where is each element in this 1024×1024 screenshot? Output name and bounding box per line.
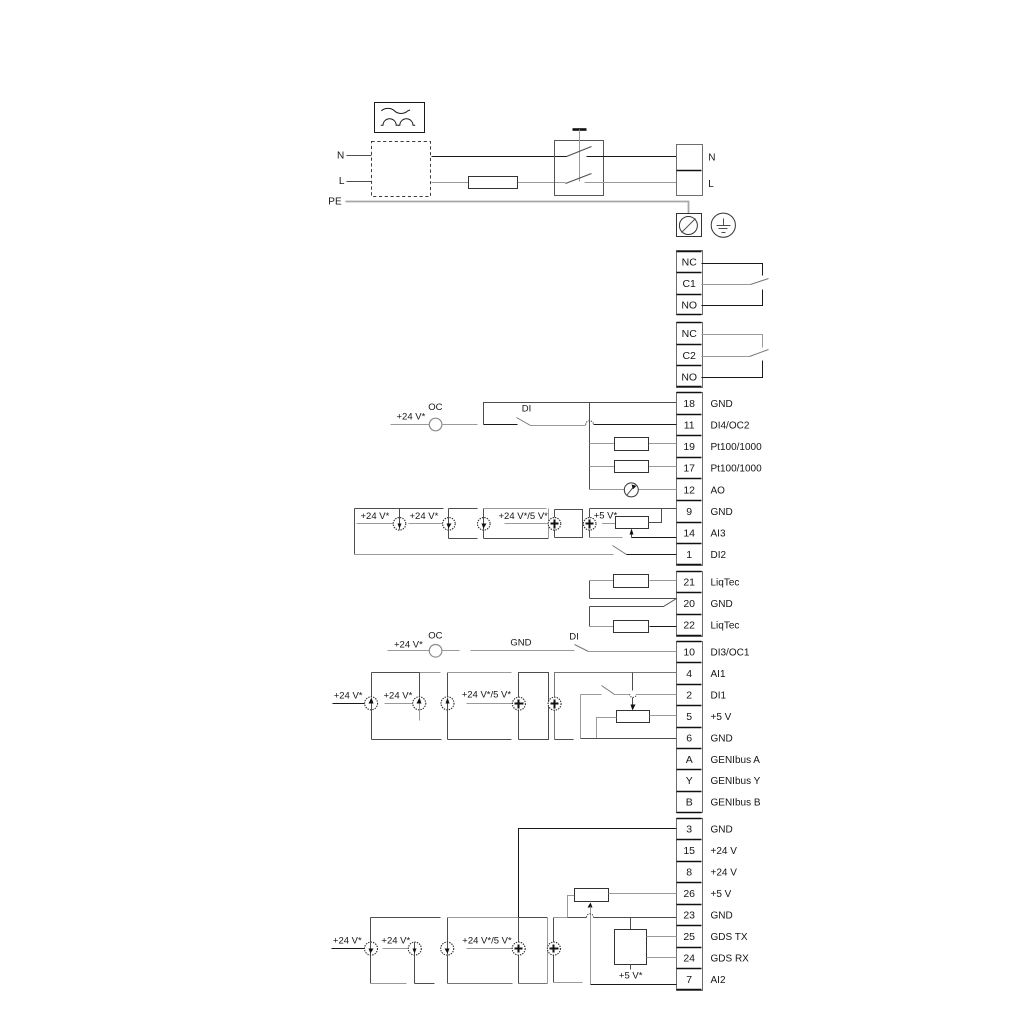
svg-text:6: 6	[686, 732, 692, 744]
svg-text:+24 V*: +24 V*	[333, 936, 362, 947]
svg-text:GENIbus B: GENIbus B	[711, 798, 761, 809]
svg-text:+5 V: +5 V	[711, 712, 732, 723]
svg-text:DI: DI	[569, 632, 579, 643]
svg-text:OC: OC	[428, 631, 442, 642]
svg-text:Pt100/1000: Pt100/1000	[711, 442, 763, 453]
svg-text:+24 V*/5 V*: +24 V*/5 V*	[462, 936, 512, 947]
svg-text:+5 V: +5 V	[711, 889, 732, 900]
svg-text:8: 8	[686, 867, 692, 879]
svg-text:GND: GND	[711, 399, 733, 410]
svg-text:B: B	[686, 797, 693, 809]
svg-text:Pt100/1000: Pt100/1000	[711, 464, 763, 475]
svg-text:AI2: AI2	[711, 975, 726, 986]
svg-text:17: 17	[683, 463, 695, 475]
svg-text:GND: GND	[711, 911, 733, 922]
svg-text:19: 19	[683, 441, 695, 453]
svg-text:GND: GND	[711, 733, 733, 744]
svg-text:+24 V: +24 V	[711, 846, 738, 857]
svg-text:26: 26	[683, 888, 695, 900]
svg-text:+24 V*: +24 V*	[397, 412, 426, 423]
svg-text:C1: C1	[682, 278, 696, 290]
svg-text:15: 15	[683, 845, 695, 857]
svg-text:18: 18	[683, 398, 695, 410]
svg-text:23: 23	[683, 910, 695, 922]
svg-text:LiqTec: LiqTec	[711, 578, 740, 589]
svg-text:DI3/OC1: DI3/OC1	[711, 648, 750, 659]
svg-text:1: 1	[686, 549, 692, 561]
svg-text:GND: GND	[711, 825, 733, 836]
svg-text:+24 V*: +24 V*	[381, 936, 410, 947]
svg-text:GND: GND	[711, 599, 733, 610]
svg-text:10: 10	[683, 647, 695, 659]
svg-text:3: 3	[686, 824, 692, 836]
svg-text:+24 V*: +24 V*	[361, 511, 390, 522]
svg-text:+24 V: +24 V	[711, 868, 738, 879]
svg-text:24: 24	[683, 953, 695, 965]
svg-text:+5 V*: +5 V*	[594, 510, 618, 521]
svg-text:11: 11	[684, 419, 695, 431]
svg-text:+5 V*: +5 V*	[619, 971, 643, 982]
svg-text:N: N	[337, 151, 344, 162]
svg-text:L: L	[708, 179, 714, 190]
svg-text:N: N	[708, 153, 715, 164]
svg-text:22: 22	[683, 620, 695, 632]
svg-text:5: 5	[686, 711, 692, 723]
svg-text:9: 9	[686, 506, 692, 518]
svg-text:OC: OC	[428, 402, 442, 413]
svg-text:25: 25	[683, 931, 695, 943]
svg-text:AI1: AI1	[711, 669, 726, 680]
svg-text:Y: Y	[686, 775, 693, 787]
svg-text:NC: NC	[682, 328, 698, 340]
svg-text:GND: GND	[510, 638, 531, 649]
svg-text:14: 14	[683, 528, 695, 540]
svg-text:7: 7	[686, 974, 692, 986]
svg-text:21: 21	[683, 577, 695, 589]
svg-text:DI4/OC2: DI4/OC2	[711, 420, 750, 431]
svg-text:DI2: DI2	[711, 550, 727, 561]
svg-text:DI1: DI1	[711, 691, 727, 702]
svg-text:12: 12	[683, 484, 695, 496]
svg-text:+24 V*: +24 V*	[384, 690, 413, 701]
svg-text:A: A	[686, 754, 693, 766]
svg-text:AO: AO	[711, 485, 726, 496]
svg-text:DI: DI	[522, 403, 532, 414]
svg-text:C2: C2	[682, 350, 696, 362]
svg-text:+24 V*/5 V*: +24 V*/5 V*	[499, 511, 549, 522]
svg-text:AI3: AI3	[711, 529, 726, 540]
svg-text:2: 2	[686, 690, 692, 702]
svg-text:20: 20	[683, 598, 695, 610]
svg-text:NO: NO	[681, 371, 697, 383]
svg-text:NC: NC	[682, 256, 698, 268]
svg-text:GENIbus Y: GENIbus Y	[711, 776, 761, 787]
svg-text:GENIbus A: GENIbus A	[711, 755, 761, 766]
svg-text:+24 V*: +24 V*	[334, 690, 363, 701]
svg-text:4: 4	[686, 668, 692, 680]
svg-text:GDS RX: GDS RX	[711, 954, 750, 965]
svg-text:GND: GND	[711, 507, 733, 518]
svg-text:LiqTec: LiqTec	[711, 621, 740, 632]
svg-text:PE: PE	[328, 197, 342, 208]
svg-text:+24 V*: +24 V*	[410, 511, 439, 522]
svg-text:GDS TX: GDS TX	[711, 932, 748, 943]
svg-text:+24 V*: +24 V*	[394, 639, 423, 650]
svg-text:NO: NO	[681, 300, 697, 312]
svg-text:+24 V*/5 V*: +24 V*/5 V*	[462, 690, 512, 701]
svg-text:L: L	[339, 176, 345, 187]
